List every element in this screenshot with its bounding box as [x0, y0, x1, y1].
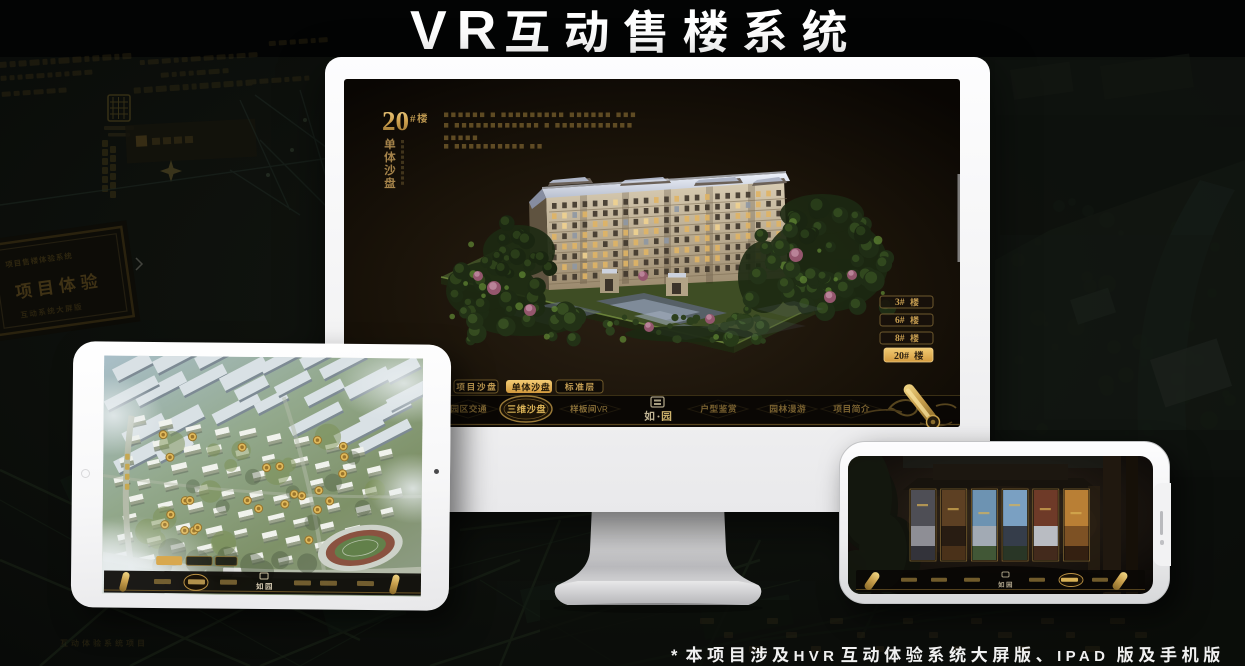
svg-text:#: #: [410, 113, 416, 125]
svg-text:3#: 3#: [895, 298, 905, 308]
svg-text:VR: VR: [597, 405, 608, 414]
svg-text:HVR: HVR: [794, 648, 839, 665]
svg-text:VR: VR: [410, 0, 506, 60]
svg-text:8#: 8#: [895, 334, 905, 344]
svg-text:20: 20: [382, 106, 409, 136]
svg-text:20#: 20#: [894, 351, 909, 362]
svg-text:*: *: [671, 647, 682, 665]
svg-text:6#: 6#: [895, 316, 905, 326]
svg-text:IPAD: IPAD: [1057, 648, 1109, 665]
